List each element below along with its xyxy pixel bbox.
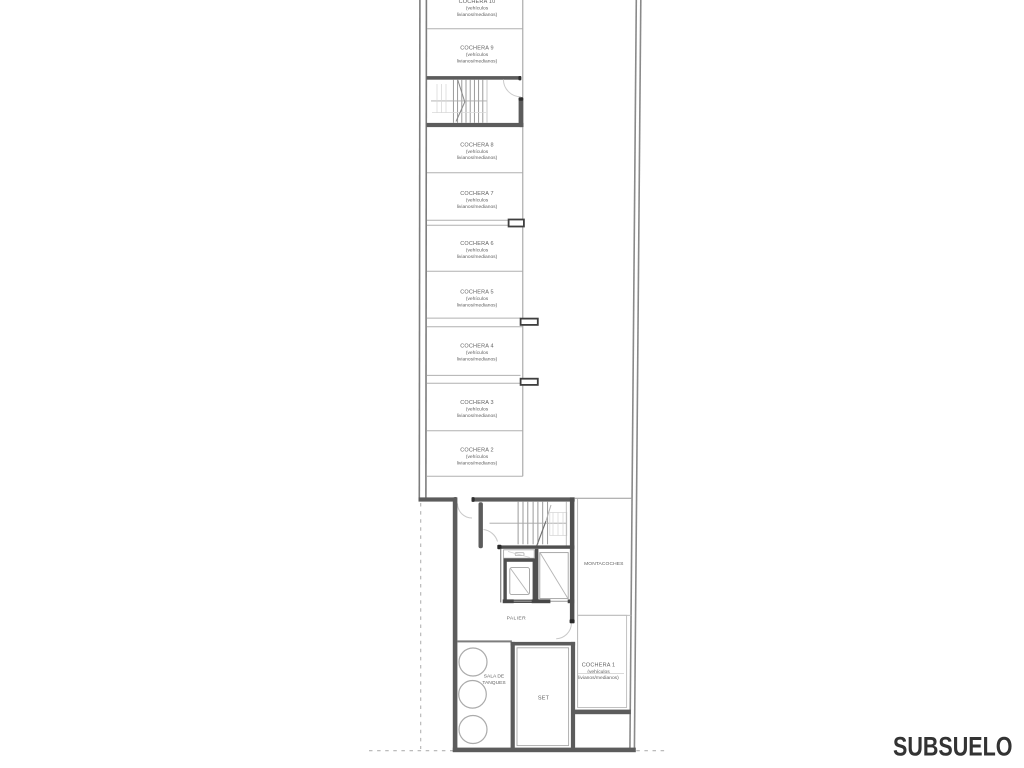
svg-text:livianos/medianos): livianos/medianos) bbox=[457, 460, 498, 466]
svg-text:SET: SET bbox=[538, 696, 550, 702]
svg-text:COCHERA 10: COCHERA 10 bbox=[459, 0, 496, 5]
svg-text:SALA DE: SALA DE bbox=[484, 674, 505, 680]
svg-text:PALIER: PALIER bbox=[507, 616, 527, 622]
svg-text:COCHERA 1: COCHERA 1 bbox=[582, 662, 616, 668]
svg-text:livianos/medianos): livianos/medianos) bbox=[457, 303, 498, 309]
svg-text:livianos/medianos): livianos/medianos) bbox=[457, 254, 498, 260]
svg-text:COCHERA 4: COCHERA 4 bbox=[460, 343, 494, 349]
svg-text:SUBSUELO: SUBSUELO bbox=[893, 732, 1013, 762]
svg-text:(vehículos: (vehículos bbox=[466, 198, 489, 204]
svg-text:livianos/medianos): livianos/medianos) bbox=[457, 413, 498, 419]
svg-text:livianos/medianos): livianos/medianos) bbox=[578, 675, 619, 681]
svg-text:MONTACOCHES: MONTACOCHES bbox=[584, 561, 624, 567]
svg-text:COCHERA 6: COCHERA 6 bbox=[460, 241, 494, 247]
svg-text:COCHERA 5: COCHERA 5 bbox=[460, 290, 494, 296]
svg-text:(vehículos: (vehículos bbox=[466, 6, 489, 12]
svg-text:livianos/medianos): livianos/medianos) bbox=[457, 204, 498, 210]
svg-text:(vehículos: (vehículos bbox=[466, 248, 489, 254]
svg-text:COCHERA 8: COCHERA 8 bbox=[460, 142, 494, 148]
svg-text:COCHERA 9: COCHERA 9 bbox=[460, 46, 494, 52]
svg-text:(vehículos: (vehículos bbox=[466, 296, 489, 302]
svg-text:TANQUES: TANQUES bbox=[482, 680, 506, 686]
svg-text:(vehículos: (vehículos bbox=[466, 350, 489, 356]
svg-text:livianos/medianos): livianos/medianos) bbox=[457, 59, 498, 65]
svg-text:(vehículos: (vehículos bbox=[466, 454, 489, 460]
svg-text:COCHERA 2: COCHERA 2 bbox=[460, 447, 494, 453]
svg-text:COCHERA 7: COCHERA 7 bbox=[460, 191, 494, 197]
svg-text:livianos/medianos): livianos/medianos) bbox=[457, 12, 498, 18]
svg-text:(vehículos: (vehículos bbox=[587, 669, 610, 675]
svg-text:COCHERA 3: COCHERA 3 bbox=[460, 400, 494, 406]
svg-text:(vehículos: (vehículos bbox=[466, 149, 489, 155]
svg-text:(vehículos: (vehículos bbox=[466, 407, 489, 413]
svg-text:livianos/medianos): livianos/medianos) bbox=[457, 155, 498, 161]
svg-text:(vehículos: (vehículos bbox=[466, 52, 489, 58]
svg-text:livianos/medianos): livianos/medianos) bbox=[457, 356, 498, 362]
